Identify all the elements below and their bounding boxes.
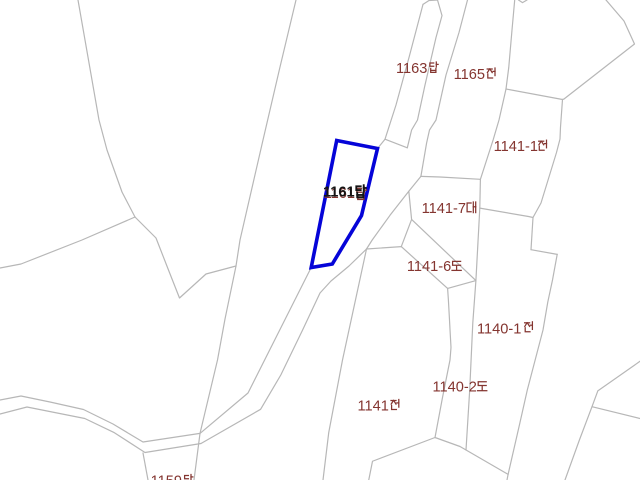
svg-text:1141-1: 1141-1 xyxy=(494,139,538,155)
svg-text:1141-6: 1141-6 xyxy=(407,259,451,275)
svg-text:1163: 1163 xyxy=(396,61,427,77)
svg-text:1140-1: 1140-1 xyxy=(477,322,521,338)
svg-text:1165: 1165 xyxy=(454,67,485,83)
svg-text:1141: 1141 xyxy=(358,399,389,415)
svg-text:1141-7: 1141-7 xyxy=(422,201,466,217)
svg-text:1161: 1161 xyxy=(323,184,355,200)
svg-text:1159: 1159 xyxy=(151,474,182,480)
svg-text:1140-2: 1140-2 xyxy=(433,380,477,396)
